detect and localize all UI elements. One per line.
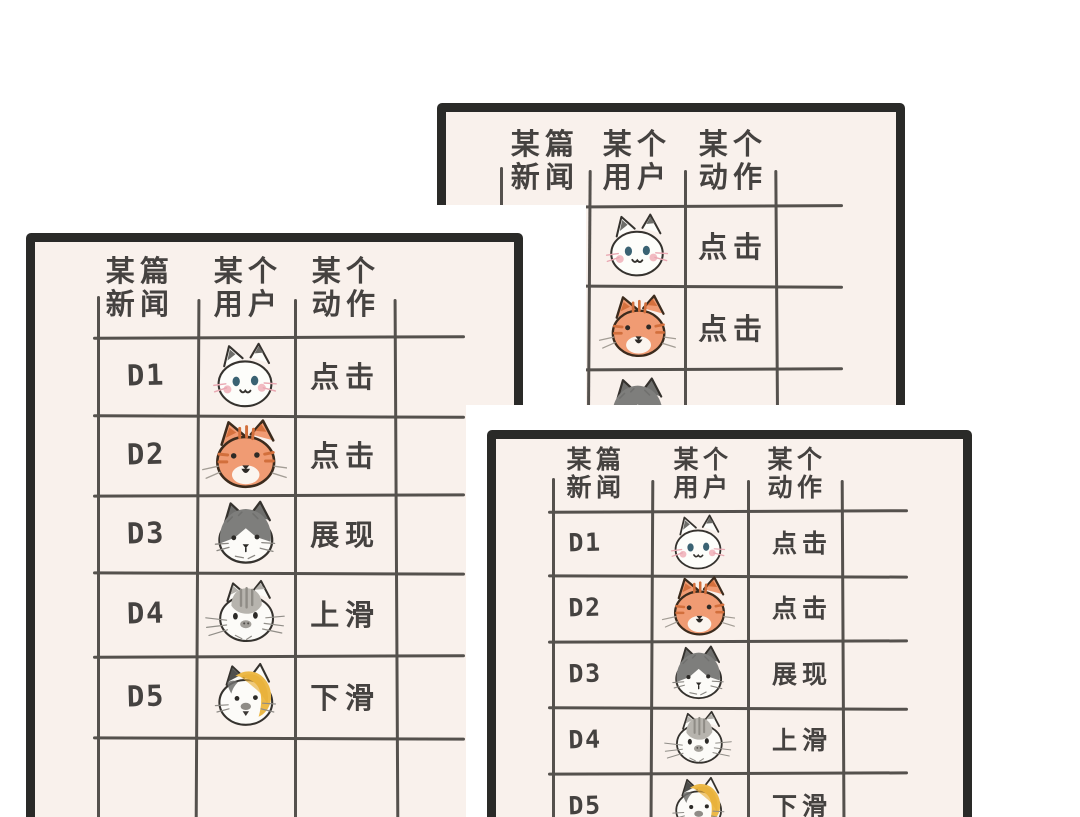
column-header-action: 某个动作 bbox=[673, 128, 793, 194]
news-id-cell: D5 bbox=[525, 785, 646, 817]
news-id-cell: D5 bbox=[85, 674, 206, 717]
column-header-news: 某篇新闻 bbox=[536, 446, 656, 502]
news-id-cell: D2 bbox=[85, 432, 206, 475]
cat-orange-tabby-icon bbox=[598, 292, 676, 362]
grid-line bbox=[93, 571, 465, 575]
news-id-cell: D1 bbox=[85, 353, 206, 396]
action-cell: 点击 bbox=[285, 434, 405, 474]
cat-gray-tuxedo-icon bbox=[664, 642, 732, 704]
news-id-cell: D2 bbox=[525, 587, 646, 626]
cat-white-icon bbox=[664, 511, 732, 573]
action-cell: 点击 bbox=[673, 307, 793, 347]
cat-gray-tuxedo-icon bbox=[205, 497, 285, 569]
cat-white-icon bbox=[598, 210, 676, 280]
action-cell: 点击 bbox=[285, 355, 405, 395]
left-table: 某篇新闻 某个用户 某个动作 D1 点击 D2 bbox=[26, 233, 523, 817]
action-cell: 上滑 bbox=[742, 721, 862, 757]
action-cell: 点击 bbox=[742, 589, 862, 625]
action-cell: 点击 bbox=[673, 225, 793, 265]
cat-orange-tabby-icon bbox=[661, 573, 735, 641]
comic-page: 某篇新闻 某个用户 某个动作 点击 bbox=[0, 0, 1080, 817]
grid-line bbox=[649, 480, 655, 817]
cat-orange-tabby-icon bbox=[201, 416, 287, 494]
action-cell: 点击 bbox=[742, 524, 862, 560]
action-cell: 下滑 bbox=[742, 787, 862, 817]
news-id-cell: D3 bbox=[85, 511, 206, 554]
action-cell: 展现 bbox=[285, 513, 405, 553]
news-id-cell: D3 bbox=[525, 653, 646, 692]
action-cell: 展现 bbox=[742, 655, 862, 691]
cat-calico-icon bbox=[205, 660, 285, 732]
cat-white-icon bbox=[205, 339, 285, 411]
bottom-right-table: 某篇新闻 某个用户 某个动作 D1 点击 D2 bbox=[487, 430, 972, 817]
cat-gray-tabby-icon bbox=[205, 577, 285, 649]
cat-calico-icon bbox=[664, 774, 732, 817]
action-cell: 上滑 bbox=[285, 593, 405, 633]
cat-gray-tabby-icon bbox=[664, 708, 732, 770]
news-id-cell: D1 bbox=[525, 522, 646, 561]
column-header-action: 某个动作 bbox=[737, 446, 857, 502]
news-id-cell: D4 bbox=[85, 591, 206, 634]
column-header-action: 某个动作 bbox=[281, 255, 411, 321]
bottom-right-panel: 某篇新闻 某个用户 某个动作 D1 点击 D2 bbox=[466, 405, 990, 817]
grid-line bbox=[93, 736, 465, 740]
grid-line bbox=[93, 654, 465, 659]
action-cell: 下滑 bbox=[285, 676, 405, 716]
news-id-cell: D4 bbox=[525, 719, 646, 758]
